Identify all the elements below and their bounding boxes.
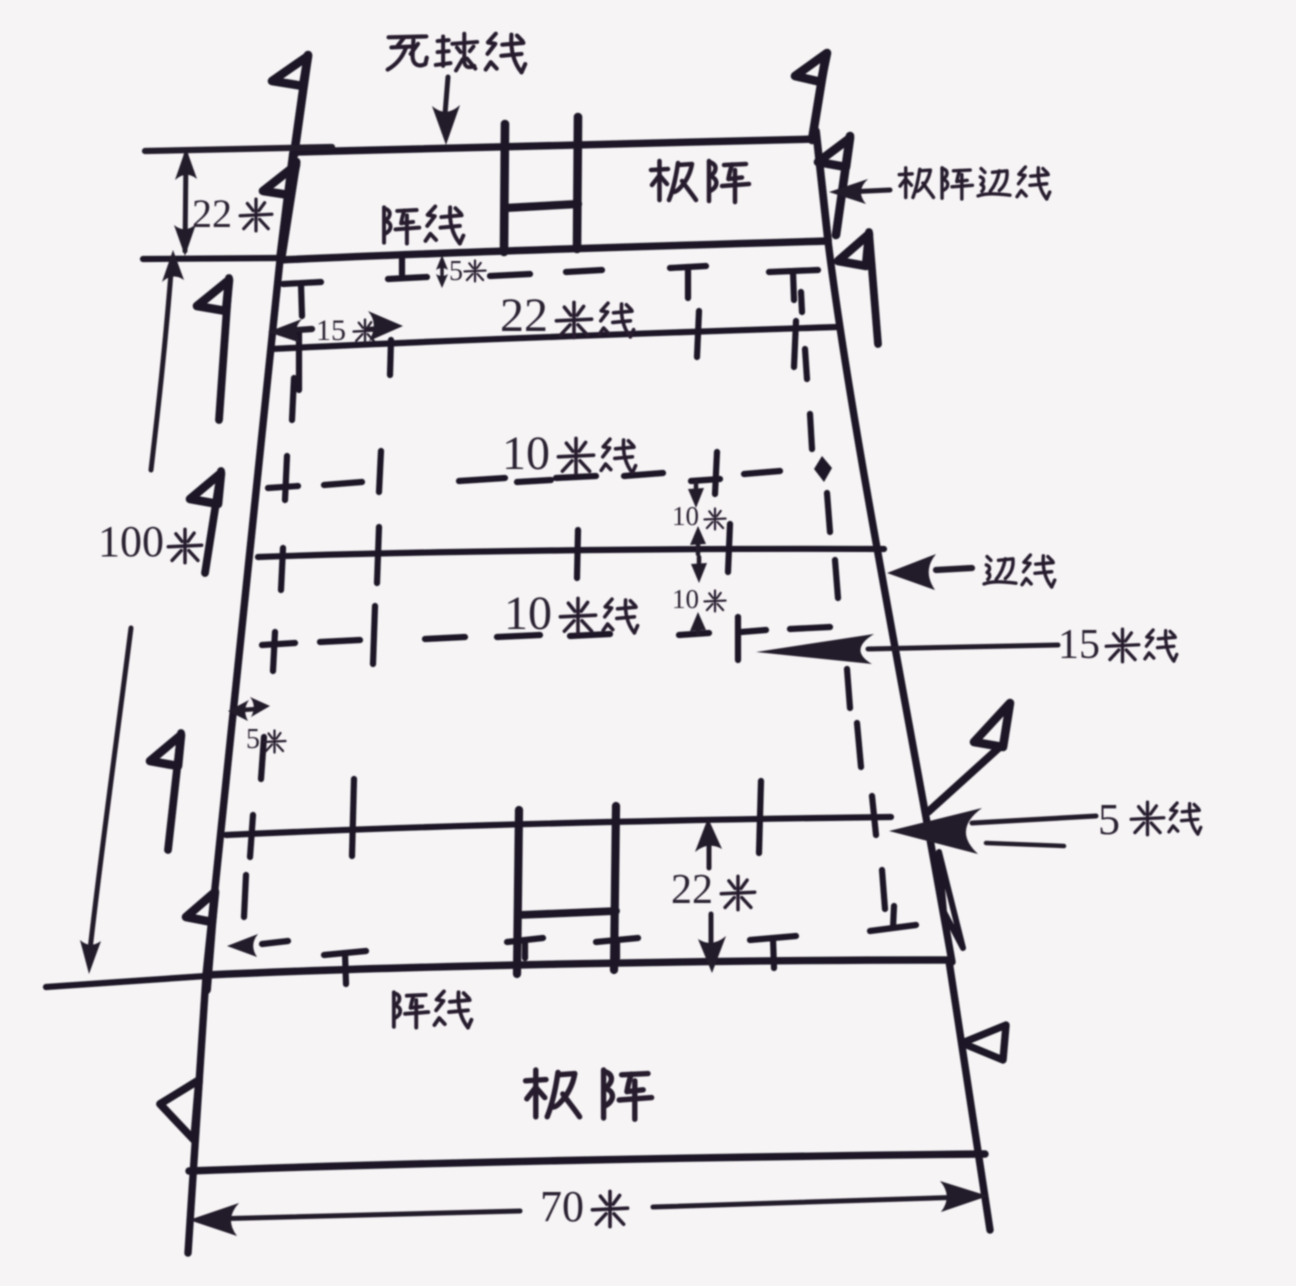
- svg-text:5: 5: [246, 724, 260, 755]
- svg-text:10: 10: [504, 587, 552, 640]
- svg-text:5: 5: [1098, 795, 1120, 844]
- svg-text:22: 22: [500, 289, 548, 342]
- svg-text:10: 10: [672, 584, 699, 614]
- svg-text:100: 100: [98, 517, 164, 566]
- svg-text:15: 15: [316, 314, 346, 347]
- svg-text:22: 22: [192, 191, 232, 236]
- svg-text:5: 5: [449, 256, 463, 287]
- svg-text:15: 15: [1058, 622, 1100, 668]
- svg-text:70: 70: [540, 1182, 584, 1231]
- svg-text:10: 10: [672, 501, 699, 531]
- svg-text:22: 22: [671, 867, 713, 913]
- svg-text:10: 10: [502, 427, 550, 480]
